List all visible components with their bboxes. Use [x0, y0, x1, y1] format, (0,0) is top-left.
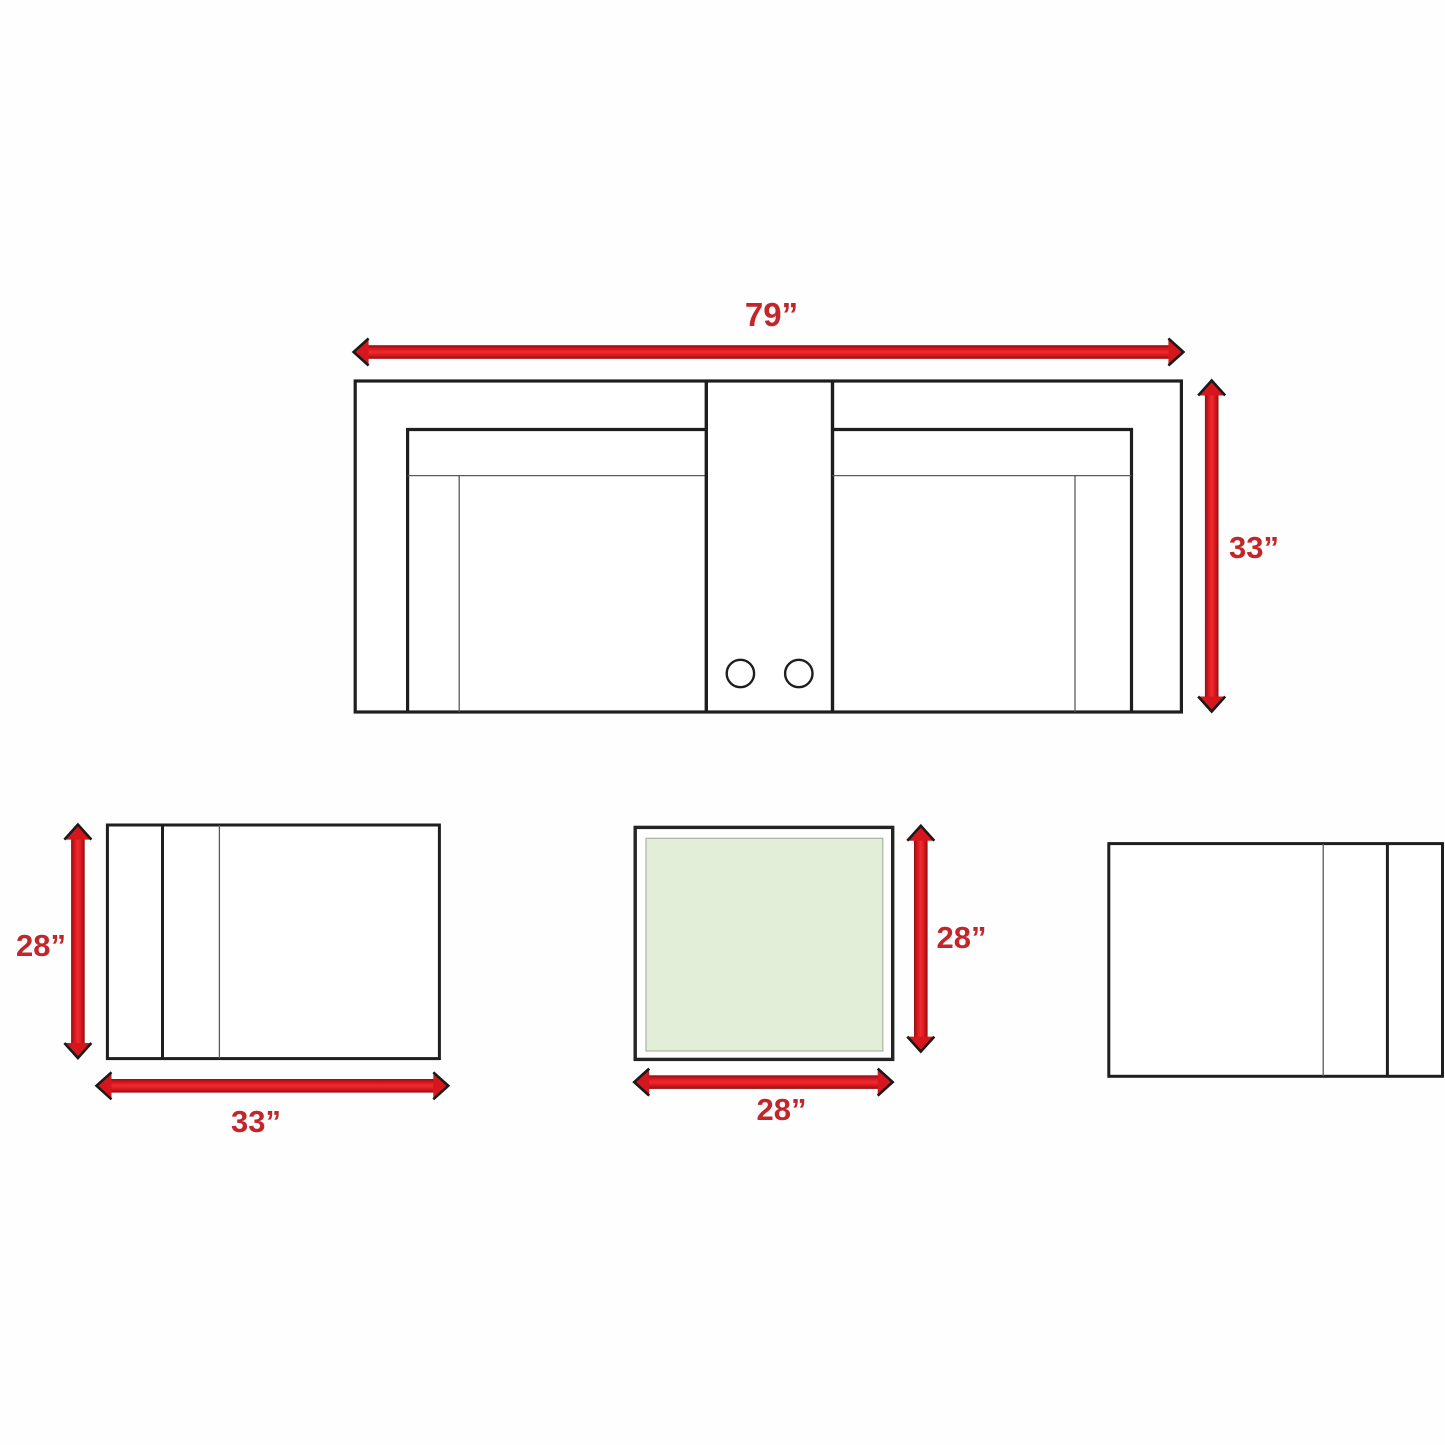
- svg-text:79”: 79”: [745, 296, 798, 333]
- svg-text:33”: 33”: [1229, 530, 1279, 565]
- svg-text:28”: 28”: [16, 928, 66, 963]
- svg-text:28”: 28”: [757, 1092, 807, 1127]
- svg-text:28”: 28”: [937, 920, 987, 955]
- svg-text:33”: 33”: [231, 1104, 281, 1139]
